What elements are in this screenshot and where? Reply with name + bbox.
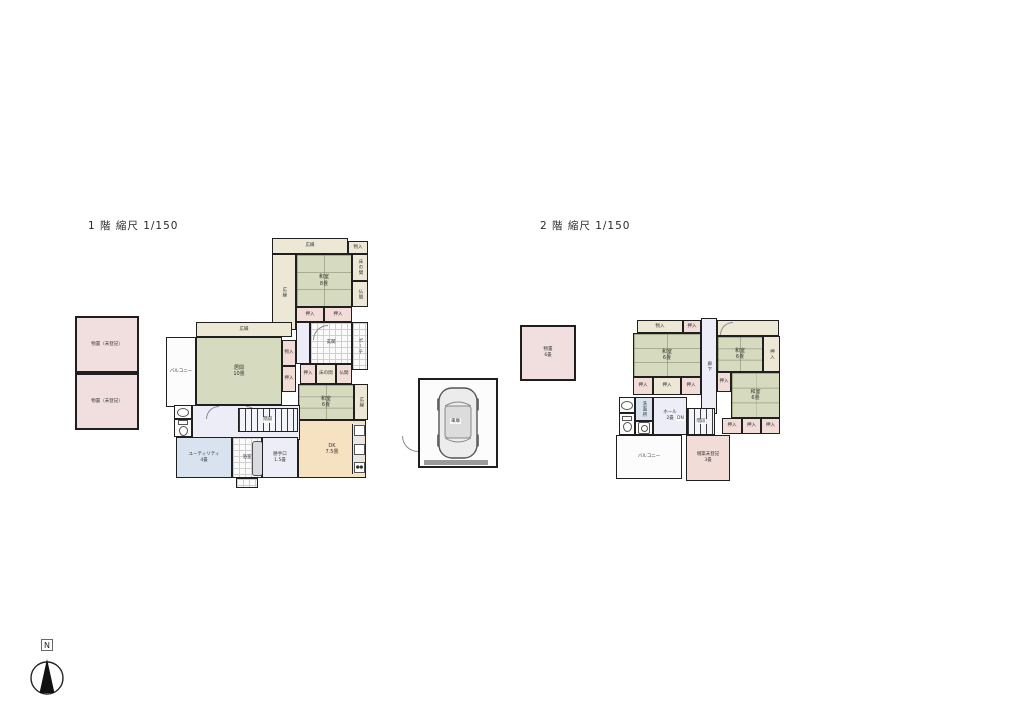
room-balcony-1f-label: バルコニー <box>170 369 192 375</box>
storage-shed-lower-label: 物置（未登記） <box>91 399 123 405</box>
room-butsuma2-label: 仏間 <box>340 371 349 377</box>
room-monoire-2f: 物入 <box>637 320 683 333</box>
room-annex-2f: 増築未登記 3畳 <box>686 435 730 481</box>
room-genkan-label: 玄関 <box>327 340 336 346</box>
storage-shed-lower: 物置（未登記） <box>75 373 139 430</box>
room-utility-label: ユーティリティ 4畳 <box>189 452 220 463</box>
room-tokonoma2: 床の間 <box>316 364 336 384</box>
stairs-2f-label: 階段 <box>696 419 707 425</box>
room-tokonoma2-label: 床の間 <box>319 371 333 377</box>
storage-shed-upper: 物置（未登記） <box>75 316 139 373</box>
floor1-title: 1 階 縮尺 1/150 <box>88 218 178 233</box>
room-oshiire-b: 押入 <box>324 307 352 322</box>
room-dk-size: 7.5畳 <box>326 449 339 455</box>
dn-label: DN <box>676 416 685 421</box>
room-tokonoma: 床の間 <box>352 254 368 281</box>
kitchen-stove-icon <box>354 462 365 473</box>
room-engawa-left: 広縁 <box>272 254 296 330</box>
corridor-upper <box>296 322 310 364</box>
room-row2-cell1: 押入 <box>722 418 742 434</box>
washbasin-icon <box>177 408 189 417</box>
toilet-bowl-icon <box>179 426 188 436</box>
kitchen-sink-icon <box>354 425 365 436</box>
storage-shed-upper-label: 物置（未登記） <box>91 342 123 348</box>
room-row1-cell3: 押入 <box>681 377 701 395</box>
room-oshiire-side-2f: 押入 <box>763 336 780 372</box>
corridor-2f-label: 廊下 <box>706 361 712 372</box>
hall-2f-label: ホール 2畳 <box>663 410 677 421</box>
room-row2-cell3-label: 押入 <box>766 423 775 429</box>
room-washitsu-a-2f-label: 和室 6畳 <box>662 349 672 362</box>
room-oshiire-side-2f-label: 押入 <box>769 349 775 360</box>
room-washitsu6: 和室 6畳 <box>298 384 354 420</box>
room-oshiire-mid-label: 押入 <box>285 376 294 382</box>
room-ima: 居間 10畳 <box>196 337 282 405</box>
washbasin-2f-icon <box>621 401 633 410</box>
room-washitsu-c-2f-label: 和室 6畳 <box>750 389 760 402</box>
room-katteguchi-label: 勝手口 1.5畳 <box>273 452 287 463</box>
room-oshiire-small-2f-label: 押入 <box>720 379 729 385</box>
room-row2-cell1-label: 押入 <box>728 423 737 429</box>
room-washitsu-a-2f: 和室 6畳 <box>633 333 701 377</box>
room-engawa-right: 広縁 <box>354 384 368 420</box>
storage-2f-size: 6畳 <box>544 353 551 359</box>
room-row1-cell1: 押入 <box>633 377 653 395</box>
back-step <box>236 478 258 488</box>
corridor-2f: 廊下 <box>701 318 717 414</box>
washer-drum-icon <box>641 425 648 432</box>
room-utility: ユーティリティ 4畳 <box>176 437 232 478</box>
room-washitsu-c-2f-size: 6畳 <box>751 395 759 401</box>
room-monoire-mid-label: 物入 <box>285 350 294 356</box>
room-genkan: 玄関 <box>310 322 352 364</box>
room-engawa-top-label: 広縁 <box>306 243 315 249</box>
floor2-title: 2 階 縮尺 1/150 <box>540 218 630 233</box>
compass-north-label: N <box>44 641 50 650</box>
room-hiroen-mid: 広縁 <box>196 322 292 337</box>
room-katteguchi: 勝手口 1.5畳 <box>262 437 298 478</box>
kitchen-counter <box>352 424 364 474</box>
room-row1-cell2-label: 押入 <box>663 383 672 389</box>
room-monoire-mid: 物入 <box>282 340 296 366</box>
compass-icon: N <box>27 638 67 700</box>
room-tokonoma-label: 床の間 <box>357 259 363 276</box>
washing-machine-icon <box>638 422 650 434</box>
room-toilet-1f <box>174 419 192 437</box>
stairs-2f: 階段 <box>687 408 715 435</box>
room-washitsu-c-2f: 和室 6畳 <box>731 372 780 418</box>
room-oshiire-b-label: 押入 <box>334 312 343 318</box>
room-senmenjo-2f: 洗面所 <box>635 397 653 421</box>
room-washitsu6-size: 6畳 <box>322 402 330 408</box>
room-oshiire-a-label: 押入 <box>306 312 315 318</box>
room-oshiire-top-2f: 押入 <box>683 320 701 333</box>
room-washitsu8: 和室 8畳 <box>296 254 352 307</box>
room-washitsu-a-2f-size: 6畳 <box>663 355 671 361</box>
storage-2f: 物置 6畳 <box>520 325 576 381</box>
room-annex-2f-size: 3畳 <box>704 458 711 464</box>
room-toilet-2f <box>619 413 635 435</box>
room-washitsu6-label: 和室 6畳 <box>321 396 331 409</box>
room-washitsu8-size: 8畳 <box>320 281 328 287</box>
room-oshiire-c: 押入 <box>300 364 316 384</box>
room-bath-label: 浴室 <box>243 455 252 461</box>
room-row2-cell3: 押入 <box>761 418 780 434</box>
room-katteguchi-size: 1.5畳 <box>274 458 286 464</box>
room-senmen-2f <box>619 397 635 413</box>
room-butsuma: 仏間 <box>352 281 368 307</box>
room-annex-2f-label: 増築未登記 3畳 <box>697 452 720 463</box>
room-oshiire-mid: 押入 <box>282 366 296 392</box>
stairs-1f: 階段 <box>238 408 298 432</box>
toilet-2f-bowl-icon <box>623 422 632 432</box>
room-monoire-top: 物入 <box>348 241 368 254</box>
room-washitsu8-label: 和室 8畳 <box>319 274 329 287</box>
hall-2f-size: 2畳 <box>666 416 673 422</box>
room-butsuma-label: 仏間 <box>357 289 363 300</box>
room-row2-cell2: 押入 <box>742 418 761 434</box>
room-engawa-left-label: 広縁 <box>281 287 287 298</box>
room-porch-label: ポーチ <box>357 338 363 355</box>
room-row1-cell1-label: 押入 <box>639 383 648 389</box>
room-balcony-2f-label: バルコニー <box>638 454 660 460</box>
room-senmenjo-2f-label: 洗面所 <box>641 401 647 418</box>
toilet-2f-tank-icon <box>622 416 632 421</box>
storage-2f-label: 物置 6畳 <box>544 347 553 358</box>
toilet-icon <box>178 420 188 436</box>
room-oshiire-c-label: 押入 <box>304 371 313 377</box>
toilet-2f-icon <box>622 416 632 432</box>
room-utility-size: 4畳 <box>200 458 207 464</box>
room-ima-label: 居間 10畳 <box>233 365 244 378</box>
toilet-tank-icon <box>178 420 188 425</box>
room-washitsu-b-2f: 和室 6畳 <box>717 336 763 372</box>
room-balcony-2f: バルコニー <box>616 435 682 479</box>
room-oshiire-small-2f: 押入 <box>717 372 731 392</box>
room-dk-label: DK 7.5畳 <box>326 443 339 456</box>
garage-shutter <box>424 460 488 465</box>
room-senmen-1f <box>174 405 192 419</box>
room-washitsu-b-2f-label: 和室 6畳 <box>735 348 745 361</box>
room-washer-2f <box>635 421 653 435</box>
stairs-1f-label: 階段 <box>263 417 274 423</box>
room-row2-cell2-label: 押入 <box>747 423 756 429</box>
room-balcony-1f: バルコニー <box>166 337 196 407</box>
room-monoire-2f-label: 物入 <box>656 324 665 330</box>
garage-label: 車庫 <box>450 418 461 424</box>
room-row1-cell3-label: 押入 <box>687 383 696 389</box>
room-hiroen-mid-label: 広縁 <box>240 327 249 333</box>
room-washitsu-b-2f-size: 6畳 <box>736 354 744 360</box>
room-butsuma2: 仏間 <box>336 364 352 384</box>
room-engawa-right-label: 広縁 <box>358 397 364 408</box>
room-oshiire-a: 押入 <box>296 307 324 322</box>
garage-door-arc <box>402 436 418 452</box>
room-oshiire-top-2f-label: 押入 <box>688 324 697 330</box>
room-engawa-top: 広縁 <box>272 238 348 254</box>
room-porch: ポーチ <box>352 322 368 370</box>
room-ima-size: 10畳 <box>233 371 244 377</box>
kitchen-counter-icon <box>354 444 365 455</box>
room-monoire-top-label: 物入 <box>354 245 363 251</box>
room-row1-cell2: 押入 <box>653 377 681 395</box>
